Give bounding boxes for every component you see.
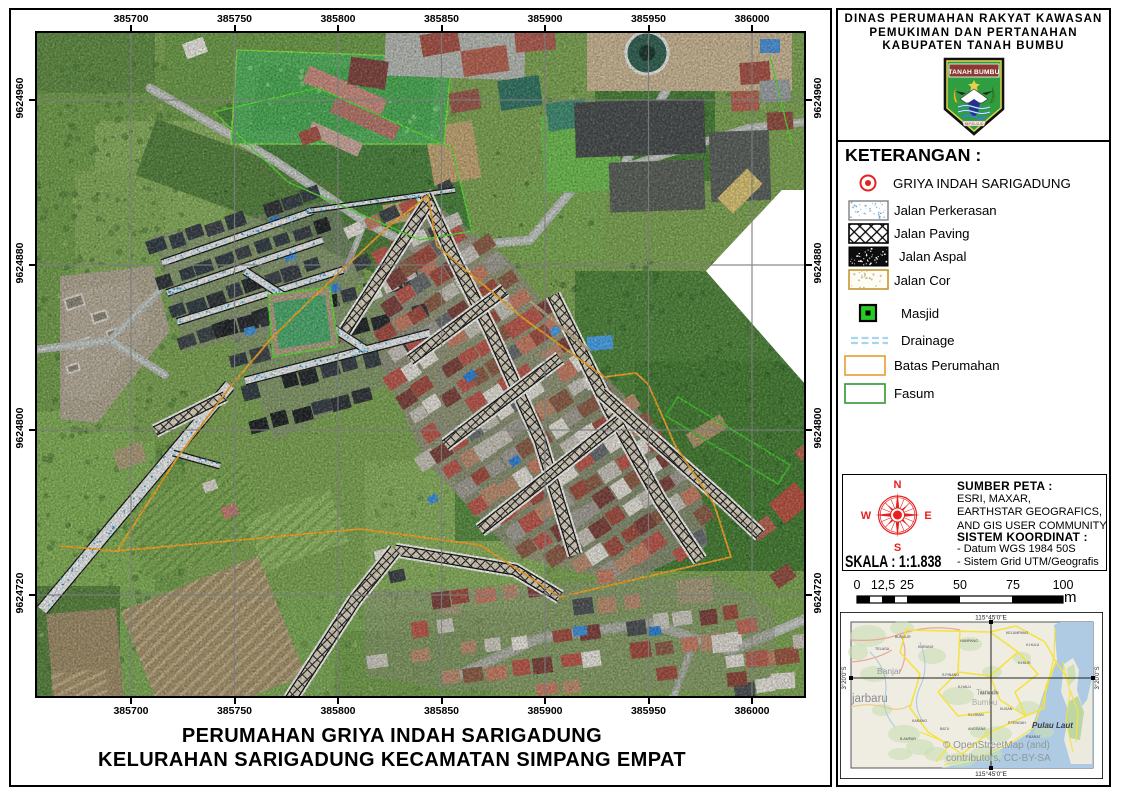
svg-text:jarbaru: jarbaru [851,693,888,705]
svg-text:BUNGUR: BUNGUR [895,635,911,639]
svg-text:115°45'0"E: 115°45'0"E [975,614,1007,622]
svg-text:HAMPANG: HAMPANG [960,639,978,643]
svg-text:KELUMPANG: KELUMPANG [1006,631,1029,635]
svg-text:TELAGA: TELAGA [875,647,890,651]
svg-text:B.AMPAR: B.AMPAR [900,737,916,741]
svg-text:K.HALU: K.HALU [958,685,971,689]
svg-text:K.HILIR: K.HILIR [1018,661,1031,665]
svg-text:Banjar: Banjar [877,666,902,676]
svg-text:Bumbu: Bumbu [972,698,997,707]
svg-text:Pulau Laut: Pulau Laut [1032,721,1073,730]
svg-text:BATULICIN: BATULICIN [980,691,999,695]
svg-text:S.PINANG: S.PINANG [942,673,959,677]
svg-text:KUSAN: KUSAN [1000,707,1013,711]
svg-text:BATU: BATU [940,727,950,731]
svg-text:K.HULU: K.HULU [1026,643,1040,647]
svg-text:P.TENGAH: P.TENGAH [1008,721,1026,725]
svg-text:KURANJI: KURANJI [918,645,933,649]
svg-text:3°20'0"S: 3°20'0"S [842,666,848,689]
svg-text:P.BARAT: P.BARAT [1026,735,1041,739]
svg-text:ANGSANA: ANGSANA [968,727,986,731]
svg-text:3°20'0"S: 3°20'0"S [1095,666,1101,689]
svg-text:contributors, CC-BY-SA: contributors, CC-BY-SA [946,753,1051,764]
svg-text:S.LOBAN: S.LOBAN [968,713,984,717]
svg-text:KARANG: KARANG [912,719,927,723]
svg-text:© OpenStreetMap (and): © OpenStreetMap (and) [943,740,1050,751]
svg-text:115°45'0"E: 115°45'0"E [975,770,1007,778]
